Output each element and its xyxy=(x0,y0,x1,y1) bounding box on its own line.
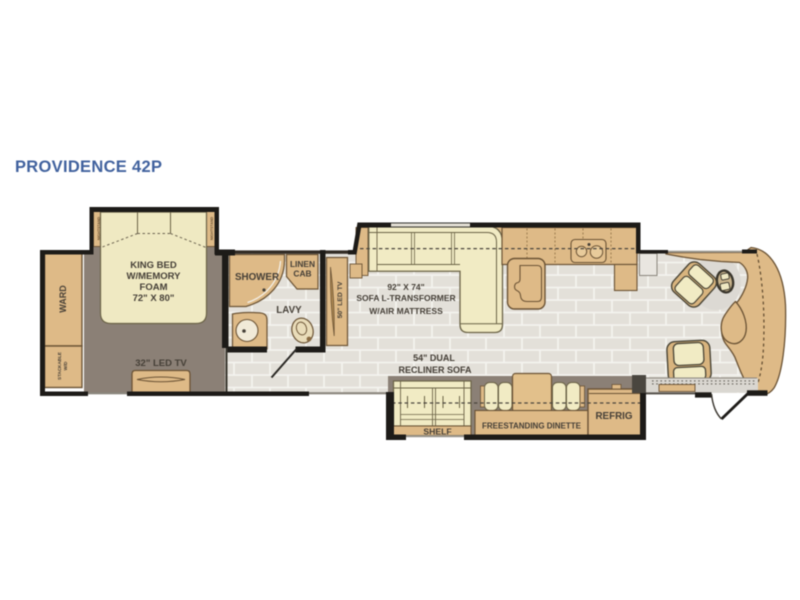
svg-text:STACKABLE: STACKABLE xyxy=(57,352,62,380)
svg-text:SHOWER: SHOWER xyxy=(235,272,279,283)
svg-text:FREESTANDING DINETTE: FREESTANDING DINETTE xyxy=(482,422,582,431)
svg-text:92" X 74": 92" X 74" xyxy=(387,282,424,292)
svg-text:PROVIDENCE 42P: PROVIDENCE 42P xyxy=(15,158,162,176)
svg-text:RECLINER SOFA: RECLINER SOFA xyxy=(398,365,472,375)
svg-text:54" DUAL: 54" DUAL xyxy=(413,353,455,363)
svg-text:WARD: WARD xyxy=(58,285,68,313)
svg-text:50" LED TV: 50" LED TV xyxy=(337,281,344,318)
svg-text:SOFA L-TRANSFORMER: SOFA L-TRANSFORMER xyxy=(356,293,455,303)
svg-text:LINEN: LINEN xyxy=(290,259,315,269)
svg-text:W/AIR MATTRESS: W/AIR MATTRESS xyxy=(369,306,443,316)
svg-text:W/D: W/D xyxy=(63,361,68,371)
svg-text:LAVY: LAVY xyxy=(276,305,302,316)
svg-text:KING BED: KING BED xyxy=(130,260,177,271)
svg-text:W/MEMORY: W/MEMORY xyxy=(126,271,181,282)
svg-text:REFRIG: REFRIG xyxy=(595,411,632,422)
svg-text:CAB: CAB xyxy=(293,269,311,279)
svg-text:FOAM: FOAM xyxy=(140,282,168,293)
svg-text:32" LED TV: 32" LED TV xyxy=(135,358,187,369)
svg-text:NIGHTSTAND: NIGHTSTAND xyxy=(210,216,214,240)
svg-text:SHELF: SHELF xyxy=(423,427,451,437)
svg-text:72" X 80": 72" X 80" xyxy=(133,293,175,304)
